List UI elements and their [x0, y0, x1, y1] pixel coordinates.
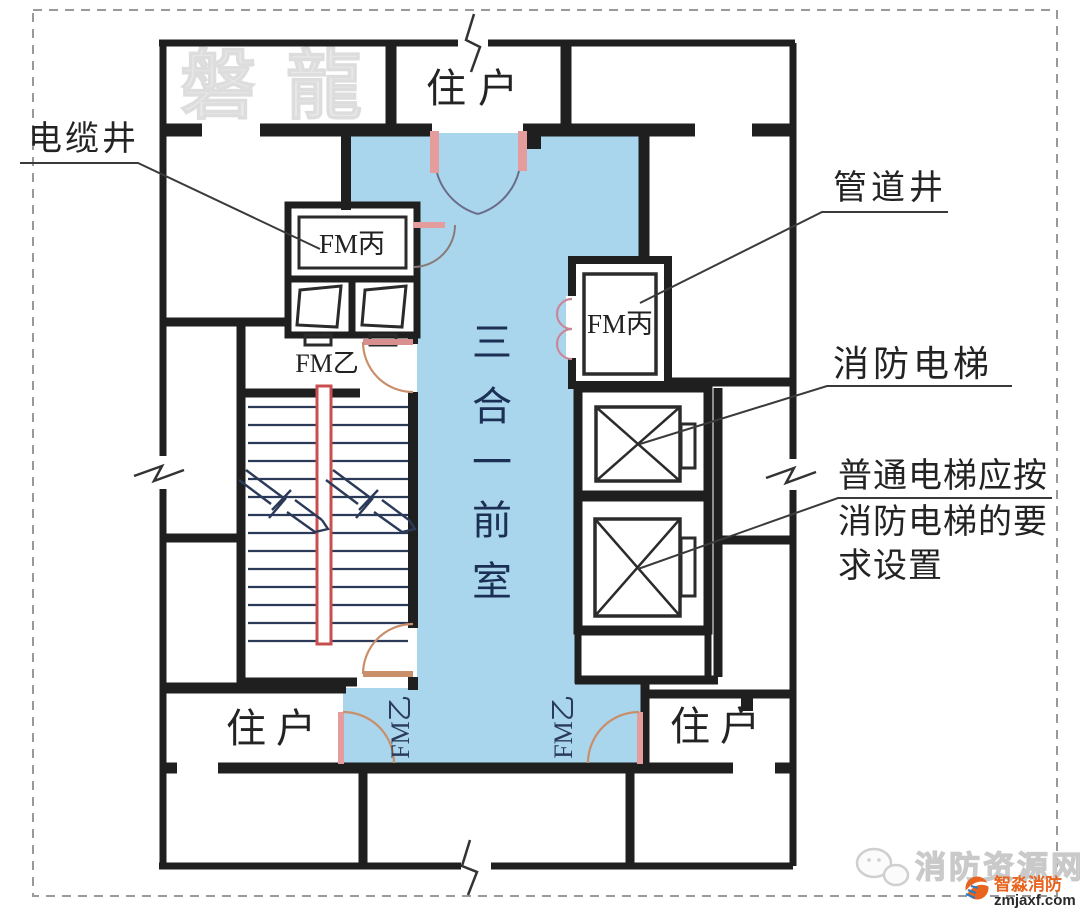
corridor-char-2: 合	[472, 384, 512, 429]
watermark-brand: 磐龍	[180, 45, 392, 129]
label-ordinary-elevator-line2: 消防电梯的要	[838, 503, 1048, 541]
door-opening	[566, 296, 578, 358]
corridor-char-3: 一	[472, 440, 512, 485]
label-ordinary-elevator-line1: 普通电梯应按	[838, 457, 1048, 495]
label-cable-shaft: 电缆井	[28, 120, 139, 158]
label-stair-door: FM乙	[295, 349, 359, 378]
door-leaf	[413, 222, 445, 228]
label-pipe-shaft: 管道井	[833, 169, 947, 207]
label-fire-elevator: 消防电梯	[833, 344, 993, 384]
logo-domain: zmjaxf.com	[994, 892, 1076, 909]
door-leaf	[637, 712, 643, 764]
label-unit-bottom-left: 住户	[226, 706, 326, 751]
chat-bubble-icon	[884, 865, 908, 885]
door-leaf	[430, 131, 439, 173]
door-leaf	[338, 712, 344, 764]
floor-plan-diagram: 磐龍	[0, 0, 1080, 910]
door-leaf	[518, 131, 527, 171]
bubble-eye-icon	[867, 858, 871, 862]
stair-handrail	[317, 386, 331, 644]
corridor-char-1: 三	[472, 320, 512, 365]
label-bottom-left-door: FM乙	[386, 695, 415, 759]
stairwell	[239, 386, 415, 644]
cable-shaft-door-label: FM丙	[319, 229, 385, 259]
floor-plan-page: 磐龍	[0, 0, 1080, 910]
corridor-char-4: 前	[472, 498, 512, 543]
door-leaf	[363, 339, 413, 345]
corridor-char-5: 室	[472, 559, 512, 604]
label-unit-bottom-right: 住户	[670, 704, 770, 749]
corridor-name-vertical: 三 合 一 前 室	[472, 320, 512, 604]
pipe-shaft-door-label: FM丙	[587, 309, 653, 339]
bubble-eye-icon	[877, 858, 881, 862]
label-ordinary-elevator-line3: 求设置	[838, 548, 943, 585]
door-leaf	[363, 671, 413, 677]
wall-jamb	[527, 130, 541, 149]
label-bottom-right-door: FM乙	[549, 695, 578, 759]
logo-name: 智淼消防	[994, 874, 1062, 894]
label-unit-top: 住户	[426, 66, 530, 111]
